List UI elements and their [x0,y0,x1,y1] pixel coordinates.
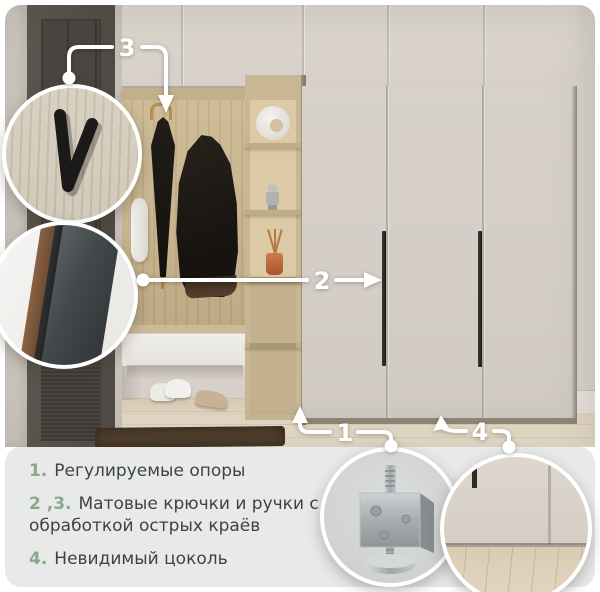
bench-drawer [122,333,245,366]
umbrella-tip [161,277,164,289]
product-card: 1.Регулируемые опоры 2 ,3.Матовые крючки… [0,0,600,592]
legend-item-1: 1.Регулируемые опоры [29,460,349,482]
right-wall [577,5,595,405]
umbrella-handle [150,103,172,120]
legend-num-2: 2 ,3. [29,494,72,514]
baseboard [577,390,595,413]
adjustable-support-icon [324,451,456,583]
matte-hook-icon [6,88,138,220]
wardrobe-door-seam [386,86,388,418]
legend-num-1: 1. [29,461,47,481]
bench-shadow [127,365,243,380]
upper-cabinets [122,5,577,88]
support-closeup-inset [320,447,460,587]
legend-num-3: 4. [29,549,47,569]
door-seam [548,457,551,545]
robot-figurine [268,185,277,192]
cabinet-seam [181,5,183,86]
shelf-divider [245,210,302,215]
wardrobe [302,86,577,418]
floor-texture [444,547,588,592]
edge-closeup-inset [0,221,138,369]
handle-notch [472,467,477,488]
legend-item-3: 4.Невидимый цоколь [29,548,349,570]
sneakers [165,379,191,398]
legend-text-1: Регулируемые опоры [54,461,245,481]
plinth-closeup-inset [440,453,592,592]
cabinet-bottom [444,457,588,545]
donut-vase-hole [270,119,283,132]
cabinet-seam [387,5,389,86]
wardrobe-handle [478,231,482,367]
shelf-lower-shade [250,277,296,415]
reed-diffuser [266,253,283,275]
cabinet-seam [483,5,485,86]
doormat [95,426,285,447]
wardrobe-door-seam [482,86,484,418]
shelf-divider [245,143,302,148]
robot-figurine [266,192,279,205]
bench-top [122,325,245,333]
wardrobe-plinth-gap [302,418,577,424]
legend-text-3: Невидимый цоколь [54,549,227,569]
hook-closeup-inset [2,84,142,224]
legend-text-2: Матовые крючки и ручки с обработкой остр… [29,494,319,536]
wardrobe-handle [382,231,386,366]
cabinet-seam [302,5,304,86]
robot-figurine [268,205,277,210]
legend-item-2: 2 ,3.Матовые крючки и ручки с обработкой… [29,493,349,537]
feature-legend: 1.Регулируемые опоры 2 ,3.Матовые крючки… [29,449,349,570]
